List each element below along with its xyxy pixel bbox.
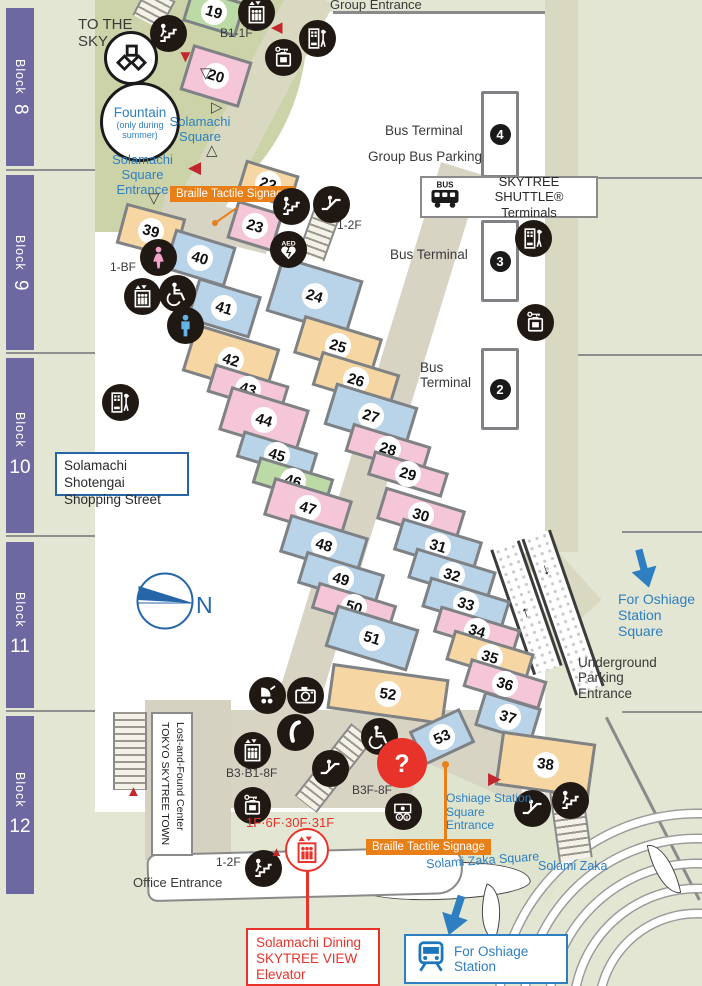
triangle-marker: ▽ (148, 191, 160, 206)
block-divider (6, 352, 95, 354)
shop-number: 24 (298, 280, 330, 312)
red-triangle-marker: ▲ (126, 784, 141, 799)
shop-number: 38 (530, 749, 559, 778)
elevator-icon (234, 732, 271, 769)
aed-icon: AED (270, 231, 307, 268)
label-group-entrance: Group Entrance (330, 0, 480, 13)
solamachi-dining-sign: Solamachi Dining SKYTREE VIEW Elevator (246, 928, 380, 986)
block-divider (622, 711, 702, 713)
shop-number: 41 (208, 292, 240, 324)
shotengai-sign: Solamachi Shotengai Shopping Street (55, 452, 189, 496)
svg-text:?: ? (394, 750, 409, 778)
coin-locker-icon (517, 304, 554, 341)
label-compass-n: N (196, 592, 226, 618)
braille-connector-dot (442, 761, 449, 768)
label-floor-red: 1F·6F·30F·31F (246, 816, 366, 831)
block-number: 12 (9, 816, 30, 838)
shop-number: 23 (239, 210, 271, 242)
braille-signage-text: Braille Tactile Signage (176, 188, 289, 200)
block-number: 9 (9, 280, 31, 291)
shop-number: 40 (184, 242, 216, 274)
shop-number: 19 (198, 0, 230, 28)
red-triangle-marker: ◀ (188, 159, 201, 176)
label-floor-1-bf: 1-BF (110, 261, 150, 275)
svg-text:AED: AED (281, 240, 295, 247)
telephone-icon (277, 714, 314, 751)
block-divider (622, 531, 702, 533)
block-word: Block (13, 59, 27, 95)
train-icon (412, 938, 450, 981)
shuttle-sub: Terminals (467, 205, 591, 221)
label-floor-1-2f-top: 1-2F (337, 219, 377, 233)
vending-machine-icon (515, 220, 552, 257)
label-oshiage-station-square-entrance: Oshiage Station Square Entrance (446, 792, 556, 833)
label-floor-b3-b1-8f: B3·B1-8F (226, 767, 296, 781)
svg-text:$: $ (405, 815, 408, 821)
block-10-bar: Block10 (6, 358, 34, 533)
block-word: Block (13, 412, 27, 448)
stairs-graphic (113, 712, 147, 790)
block-number: 10 (9, 457, 30, 479)
shop-number: 53 (425, 720, 460, 755)
red-triangle-marker: ▲ (270, 845, 283, 858)
label-solamachi-square: Solamachi Square (155, 115, 245, 145)
stroller-icon (249, 677, 286, 714)
dining-line1: Solamachi Dining (256, 935, 370, 951)
bus-terminal-number: 3 (490, 251, 511, 272)
solamachi-floor-map: ↑ ↓ 432 19202223242526272829303132333435… (0, 0, 702, 986)
escalator-icon (312, 750, 349, 787)
block-word: Block (13, 235, 27, 271)
bus-terminal-number: 4 (490, 124, 511, 145)
triangle-marker: ▷ (211, 100, 223, 115)
for-oshiage-station-text: For Oshiage Station (454, 944, 560, 974)
shop-number: 52 (373, 679, 402, 708)
braille-connector-dot (212, 220, 218, 226)
bus-terminal-number: 2 (490, 379, 511, 400)
label-floor-1-2f-bottom: 1-2F (216, 856, 256, 870)
vending-machine-icon (299, 20, 336, 57)
shuttle-title: SKYTREE SHUTTLE® (467, 174, 591, 205)
block-word: Block (13, 592, 27, 628)
triangle-marker: ▽ (200, 66, 212, 81)
fountain-sub: summer) (122, 130, 158, 140)
stairs-icon (273, 188, 310, 225)
shotengai-line2: Shopping Street (64, 492, 180, 509)
escalator-icon (313, 186, 350, 223)
block-12-bar: Block12 (6, 716, 34, 894)
label-solamachi-square-entrance: Solamachi Square Entrance (95, 153, 190, 197)
lostfound-line1: TOKYO SKYTREE TOWN (157, 722, 172, 845)
dining-line3: Elevator (256, 967, 370, 983)
bus-terminal-bay-3: 3 (481, 220, 519, 302)
lostfound-line2: Lost-and-Found Center (172, 722, 187, 845)
block-word: Block (13, 772, 27, 808)
block-divider (6, 710, 95, 712)
block-8-bar: Block8 (6, 8, 34, 166)
block-divider (6, 169, 95, 171)
label-bus-terminal-3: Bus Terminal (390, 247, 482, 262)
right-road (545, 0, 578, 552)
block-11-bar: Block11 (6, 542, 34, 708)
elevator-icon (124, 278, 161, 315)
svg-text:BUS: BUS (437, 180, 455, 189)
label-office-entrance: Office Entrance (133, 876, 243, 891)
block-number: 8 (9, 104, 31, 115)
label-bus-terminal-2: Bus Terminal (420, 360, 490, 391)
money-changer-icon: ¥$ (385, 793, 422, 830)
svg-text:¥: ¥ (398, 815, 401, 821)
mens-toilet-icon (167, 307, 204, 344)
accessible-toilet-icon (159, 275, 196, 312)
lost-and-found-sign: TOKYO SKYTREE TOWN Lost-and-Found Center (151, 712, 193, 856)
label-solami-zaka: Solami Zaka (538, 859, 628, 873)
label-floor-b1-1f: B1-1F (220, 27, 270, 41)
shop-number: 37 (492, 701, 524, 733)
red-triangle-marker: ▶ (488, 770, 501, 787)
block-divider (6, 535, 95, 537)
label-floor-b3f-8f: B3F-8F (352, 784, 412, 798)
bus-terminal-bay-4: 4 (481, 91, 519, 178)
for-oshiage-station-sign: For Oshiage Station (404, 934, 568, 984)
shotengai-line1: Solamachi Shotengai (64, 458, 180, 492)
shop-number: 44 (248, 404, 280, 436)
block-9-bar: Block9 (6, 175, 34, 350)
shop-number: 51 (356, 622, 388, 654)
skytree-view-elevator-icon (285, 828, 329, 872)
red-triangle-marker: ▼ (177, 48, 194, 65)
red-triangle-marker: ◀ (271, 20, 283, 35)
label-bus-terminal-4: Bus Terminal (385, 123, 477, 138)
label-group-bus-parking: Group Bus Parking (368, 149, 508, 164)
triangle-marker: △ (206, 143, 218, 158)
information-icon: ? (377, 738, 427, 788)
stairs-icon (552, 782, 589, 819)
skytree-shuttle-sign: BUS SKYTREE SHUTTLE® Terminals (420, 176, 598, 218)
label-for-oshiage-station-square: For Oshiage Station Square (618, 592, 702, 640)
braille-signage-text: Braille Tactile Signage (372, 841, 485, 853)
label-underground-parking-entrance: Underground Parking Entrance (578, 655, 683, 701)
camera-icon (287, 677, 324, 714)
block-number: 11 (10, 636, 30, 658)
dining-line2: SKYTREE VIEW (256, 951, 370, 967)
vending-machine-icon (102, 384, 139, 421)
coin-locker-icon (265, 39, 302, 76)
label-to-the-sky: TO THE SKY (78, 16, 148, 50)
block-divider (578, 354, 702, 356)
dining-elevator-connector (306, 871, 309, 929)
braille-signage-label: Braille Tactile Signage (366, 839, 491, 855)
bus-icon: BUS (427, 179, 463, 216)
